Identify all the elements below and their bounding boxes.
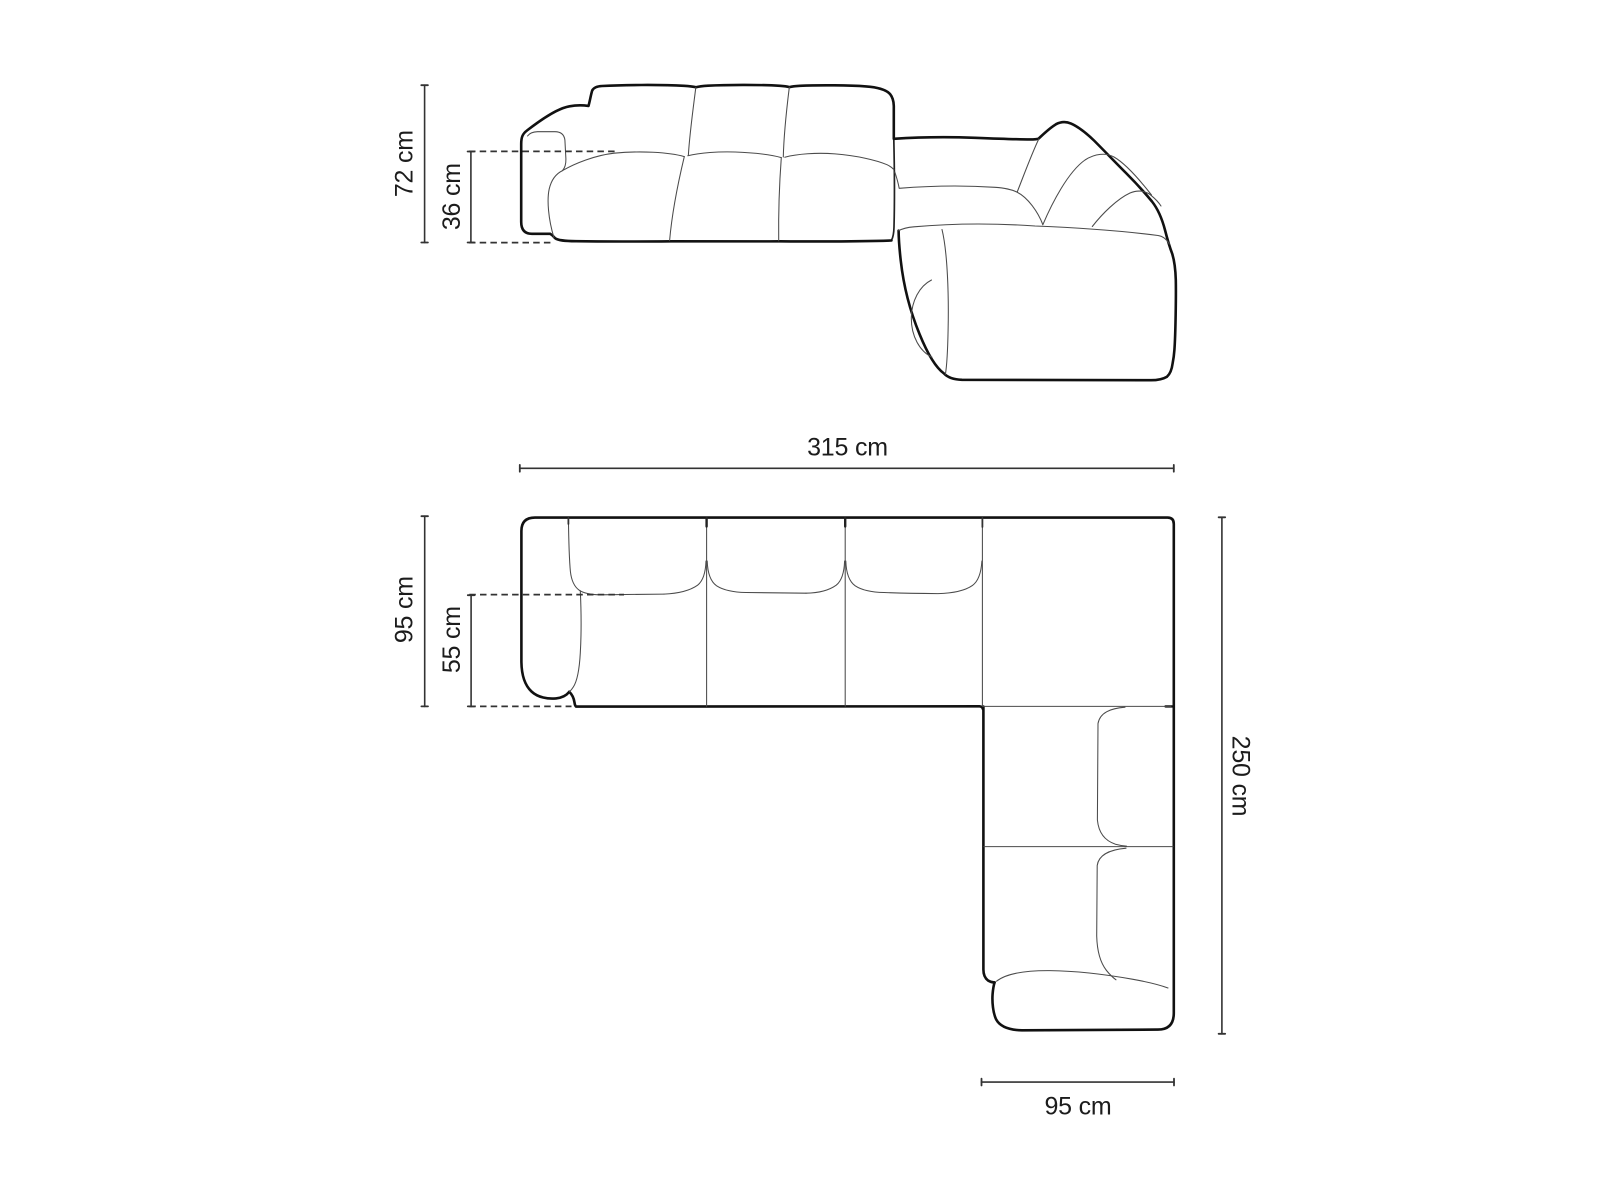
svg-text:315 cm: 315 cm — [807, 434, 888, 462]
svg-text:95 cm: 95 cm — [1044, 1093, 1111, 1121]
svg-text:95 cm: 95 cm — [391, 576, 419, 643]
svg-text:72 cm: 72 cm — [391, 130, 419, 197]
svg-text:55 cm: 55 cm — [438, 606, 466, 673]
svg-text:36 cm: 36 cm — [438, 163, 466, 230]
svg-text:250 cm: 250 cm — [1227, 736, 1255, 817]
